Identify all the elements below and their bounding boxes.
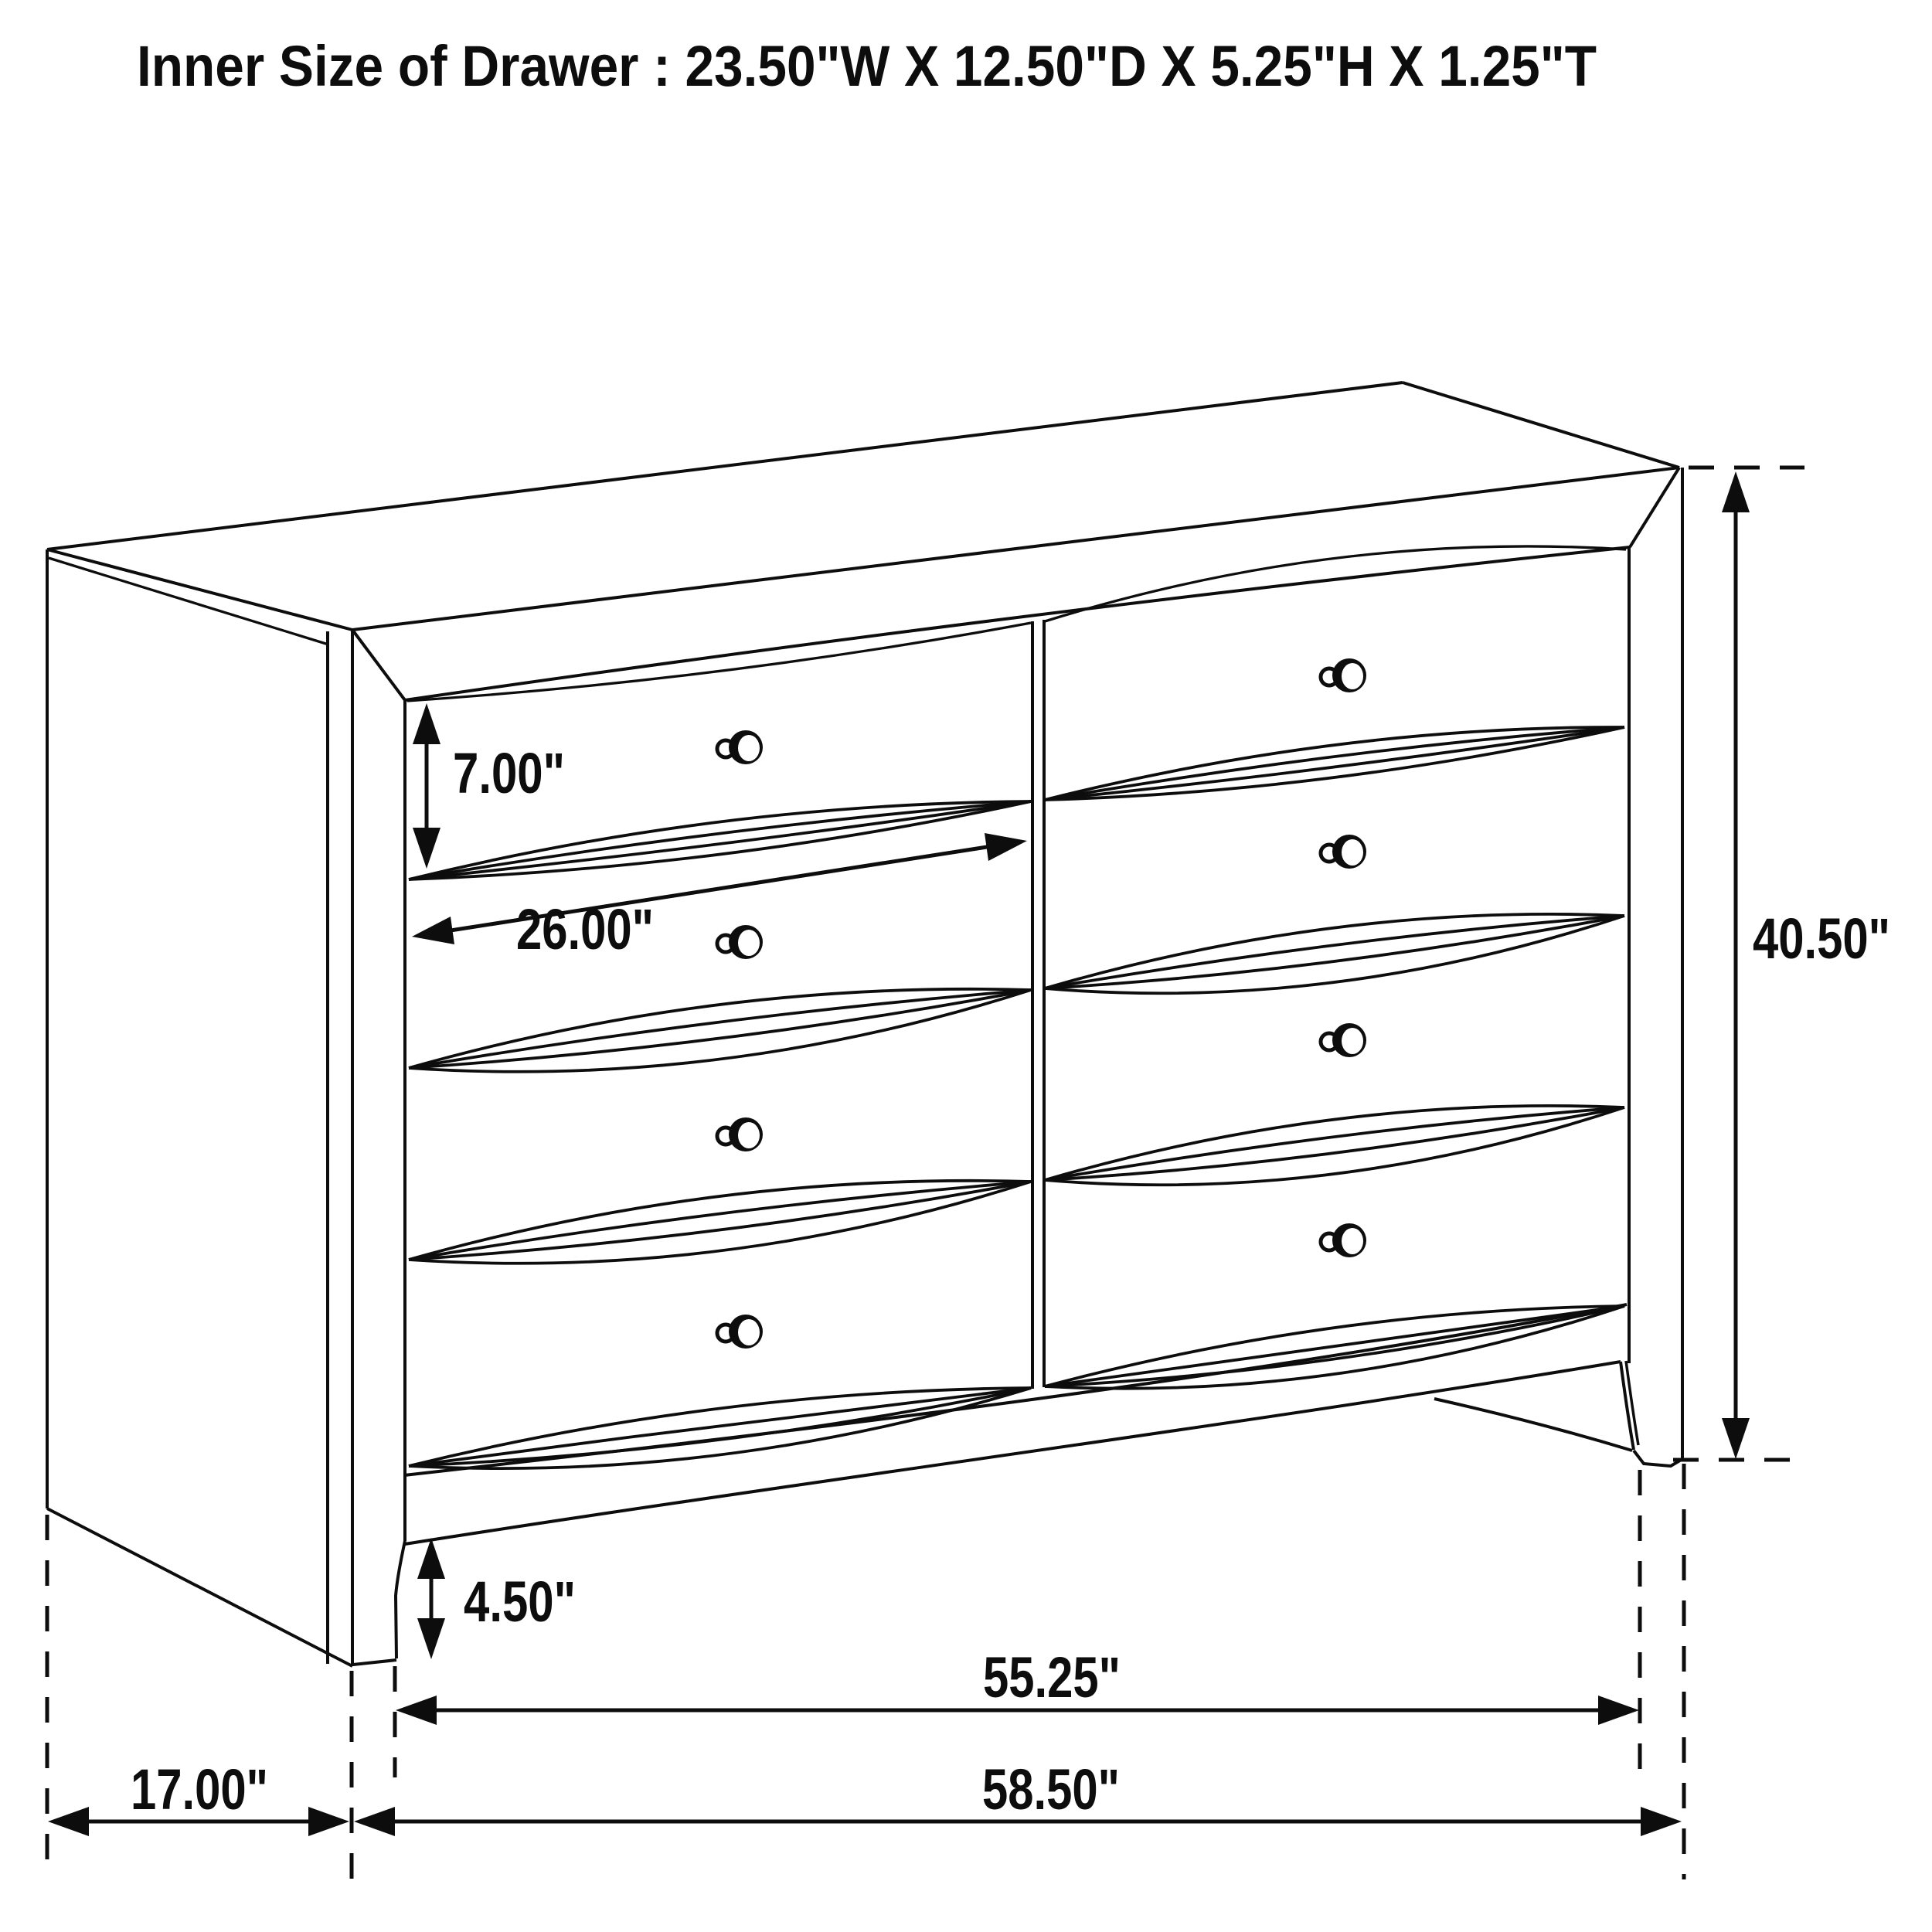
svg-text:7.00": 7.00" [453, 741, 565, 805]
svg-text:58.50": 58.50" [982, 1757, 1120, 1821]
svg-text:55.25": 55.25" [983, 1645, 1121, 1709]
svg-text:26.00": 26.00" [516, 897, 654, 961]
svg-text:4.50": 4.50" [464, 1570, 576, 1634]
svg-text:Inner Size of Drawer : 23.50"W: Inner Size of Drawer : 23.50"W X 12.50"D… [137, 34, 1597, 98]
svg-text:17.00": 17.00" [131, 1757, 268, 1821]
svg-text:40.50": 40.50" [1753, 906, 1890, 971]
